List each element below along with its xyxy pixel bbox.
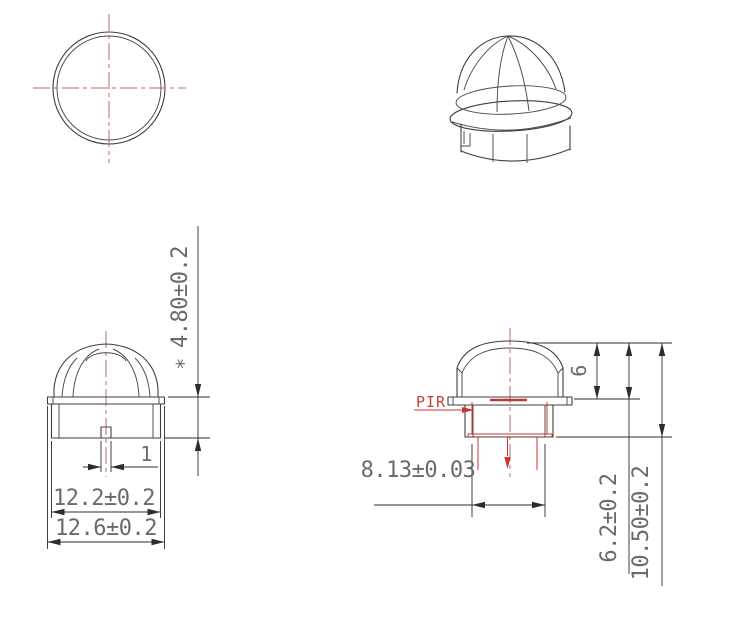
iso-notch bbox=[461, 129, 470, 146]
dim-label-dome-height: 6 bbox=[567, 365, 591, 377]
front-dome-edge-right bbox=[135, 358, 150, 397]
iso-dome-meridian-1 bbox=[464, 36, 508, 90]
dimension-pir-diameter: 8.13±0.03 bbox=[361, 444, 545, 517]
front-dome-meridian-right bbox=[113, 349, 139, 397]
skirt-height-extension-lines bbox=[164, 397, 210, 438]
dome-height-arrow-top bbox=[594, 343, 600, 356]
dim-label-flange-diameter: 12.6±0.2 bbox=[55, 516, 157, 541]
dome-height-arrow-bottom bbox=[594, 386, 600, 399]
iso-dome-base-ring bbox=[455, 83, 566, 117]
top-view bbox=[33, 14, 186, 163]
dim-label-flange-height: 6.2±0.2 bbox=[597, 473, 622, 562]
dimension-flange-height: 6.2±0.2 bbox=[597, 343, 632, 574]
iso-dome-meridian-2 bbox=[497, 36, 508, 112]
iso-flange-bottom-ring bbox=[452, 118, 571, 130]
dim-label-body-diameter: 12.2±0.2 bbox=[53, 486, 155, 511]
dimension-notch-width: 1 bbox=[83, 441, 158, 472]
skirt-height-arrow-top bbox=[195, 384, 201, 397]
iso-dome-meridian-4 bbox=[508, 36, 556, 89]
dim-label-pir-diameter: 8.13±0.03 bbox=[361, 458, 476, 483]
notch-arrow-right bbox=[111, 464, 124, 470]
iso-dome-outline bbox=[457, 36, 565, 93]
front-dome-edge-left bbox=[62, 358, 77, 397]
side-view: PIR 8.13±0.03 6 6.2±0.2 bbox=[361, 328, 672, 586]
isometric-view bbox=[449, 36, 572, 163]
drawing-canvas: 1 12.2±0.2 12.6±0.2 4.80±0.2 * bbox=[0, 0, 733, 633]
flange-height-arrow-top bbox=[626, 343, 632, 356]
dim-label-skirt-height: 4.80±0.2 bbox=[168, 246, 193, 348]
technical-drawing: 1 12.2±0.2 12.6±0.2 4.80±0.2 * bbox=[0, 0, 733, 633]
dim-label-skirt-height-note: * bbox=[172, 358, 196, 370]
front-dome-meridian-left bbox=[73, 349, 99, 397]
pir-diameter-arrow-right bbox=[532, 502, 545, 508]
total-height-arrow-bottom bbox=[659, 424, 665, 437]
iso-barrel-bottom bbox=[461, 149, 570, 161]
flange-height-arrow-bottom bbox=[626, 387, 632, 400]
dim-label-total-height: 10.50±0.2 bbox=[629, 466, 654, 581]
front-view: 1 12.2±0.2 12.6±0.2 4.80±0.2 * bbox=[48, 226, 211, 549]
total-height-arrow-top bbox=[659, 343, 665, 356]
side-body-inner-walls bbox=[473, 405, 545, 437]
dimension-dome-height: 6 bbox=[567, 343, 600, 399]
dimension-skirt-height: 4.80±0.2 * bbox=[164, 226, 210, 476]
side-extension-lines bbox=[527, 343, 672, 437]
pir-callout: PIR bbox=[414, 393, 474, 413]
dim-label-notch-width: 1 bbox=[140, 442, 152, 466]
iso-flange-top-ring bbox=[449, 98, 572, 134]
side-body-walls bbox=[465, 405, 553, 437]
skirt-height-arrow-bottom bbox=[195, 438, 201, 451]
iso-dome-meridian-3 bbox=[508, 36, 529, 111]
pir-diameter-arrow-left bbox=[472, 502, 485, 508]
pir-label: PIR bbox=[416, 393, 446, 411]
notch-arrow-left bbox=[88, 464, 101, 470]
dimension-total-height: 10.50±0.2 bbox=[629, 343, 665, 586]
